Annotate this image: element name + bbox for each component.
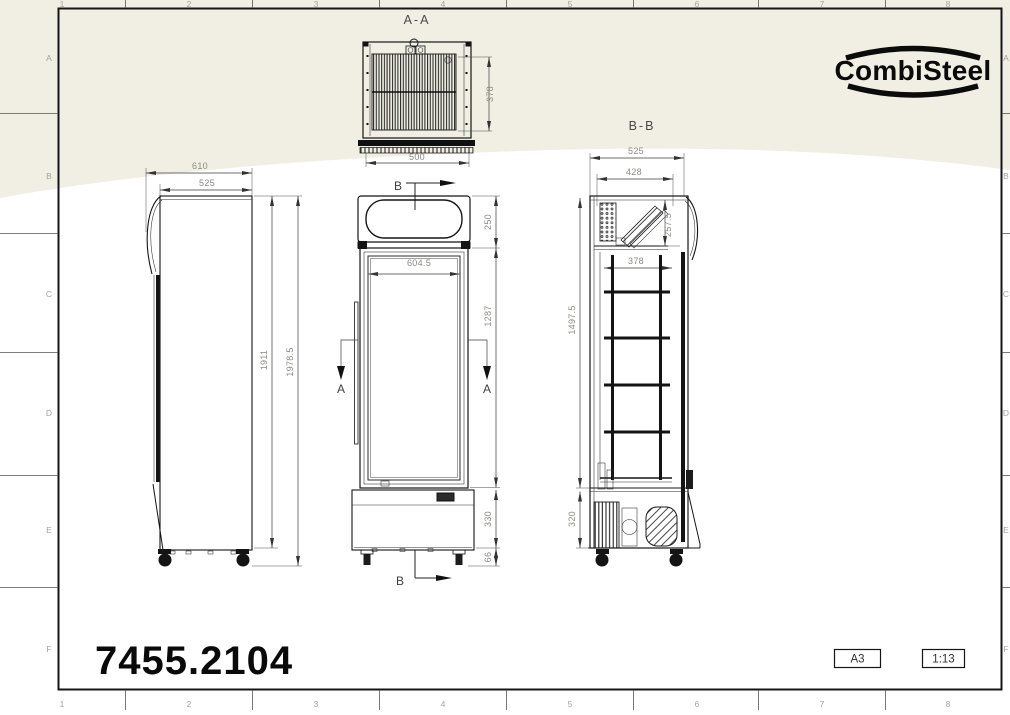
zone-col-label: 1 <box>60 699 65 709</box>
dim-aa-500: 500 <box>409 152 425 162</box>
paper-size-label: A3 <box>850 654 864 666</box>
shelf <box>604 431 670 434</box>
zone-col-label: 5 <box>568 0 573 9</box>
dim-front-604-5: 604.5 <box>407 258 431 268</box>
dim-front-330: 330 <box>483 511 493 527</box>
logo-text: CombiSteel <box>834 55 991 86</box>
dim-bb-378: 378 <box>628 256 644 266</box>
zone-row-label: F <box>1003 644 1008 654</box>
section-bb-title: B-B <box>629 119 656 133</box>
section-mark-b-top: B <box>394 179 402 193</box>
zone-col-label: 1 <box>60 0 65 9</box>
zone-col-label: 2 <box>187 699 192 709</box>
shelf-post <box>659 255 662 480</box>
zone-row-label: C <box>46 289 52 299</box>
zone-row-label: C <box>1003 289 1009 299</box>
scale-label: 1:13 <box>932 654 954 666</box>
dim-front-250: 250 <box>483 214 493 230</box>
zone-col-label: 4 <box>441 0 446 9</box>
zone-col-label: 3 <box>314 0 319 9</box>
zone-row-label: A <box>46 53 52 63</box>
caster-wheel <box>159 554 172 567</box>
dim-front-66: 66 <box>483 552 493 563</box>
dim-front-1287: 1287 <box>483 305 493 326</box>
zone-row-label: E <box>1003 525 1009 535</box>
zone-col-label: 5 <box>568 699 573 709</box>
zone-col-label: 8 <box>946 699 951 709</box>
zone-col-label: 6 <box>695 699 700 709</box>
dim-side-610: 610 <box>192 161 208 171</box>
drawing-sheet: 1 2 3 4 5 6 7 8 1 2 3 4 5 6 7 8 A B C D … <box>0 0 1010 710</box>
zone-col-label: 3 <box>314 699 319 709</box>
shelf <box>604 291 670 294</box>
caster-wheel <box>237 554 250 567</box>
control-badge <box>437 493 454 501</box>
zone-col-label: 7 <box>820 699 825 709</box>
dim-side-1911: 1911 <box>259 350 269 371</box>
zone-row-label: B <box>46 171 52 181</box>
zone-col-label: 4 <box>441 699 446 709</box>
zone-col-label: 7 <box>820 0 825 9</box>
paper-background <box>0 0 1010 710</box>
section-mark-a-left: A <box>337 382 345 396</box>
dim-bb-1497-5: 1497.5 <box>567 305 577 334</box>
dim-bb-525: 525 <box>628 146 644 156</box>
side-door-edge <box>156 275 161 482</box>
zone-row-label: A <box>1003 53 1009 63</box>
section-aa-title: A-A <box>404 13 431 27</box>
zone-col-label: 2 <box>187 0 192 9</box>
evaporator-coil <box>600 203 616 241</box>
dim-bb-257-5: 257.5 <box>663 213 673 237</box>
zone-row-label: D <box>46 408 52 418</box>
dim-bb-320: 320 <box>567 511 577 527</box>
condenser-block <box>594 502 619 548</box>
zone-row-label: E <box>46 525 52 535</box>
dim-bb-428: 428 <box>626 167 642 177</box>
section-mark-a-right: A <box>483 382 491 396</box>
shelf <box>604 384 670 387</box>
article-number: 7455.2104 <box>95 639 293 683</box>
caster-wheel <box>596 554 609 567</box>
fan-deck <box>358 140 475 146</box>
zone-col-label: 8 <box>946 0 951 9</box>
shelf <box>604 337 670 340</box>
shelf-post <box>611 255 614 480</box>
compressor <box>646 507 677 546</box>
dim-aa-378: 378 <box>485 86 495 102</box>
zone-row-label: F <box>46 644 51 654</box>
dim-side-525: 525 <box>199 178 215 188</box>
zone-row-label: B <box>1003 171 1009 181</box>
caster-wheel <box>670 554 683 567</box>
zone-col-label: 6 <box>695 0 700 9</box>
dim-side-1978-5: 1978.5 <box>285 347 295 376</box>
zone-row-label: D <box>1003 408 1009 418</box>
section-mark-b-bottom: B <box>396 574 404 588</box>
bb-door-section <box>681 252 685 542</box>
